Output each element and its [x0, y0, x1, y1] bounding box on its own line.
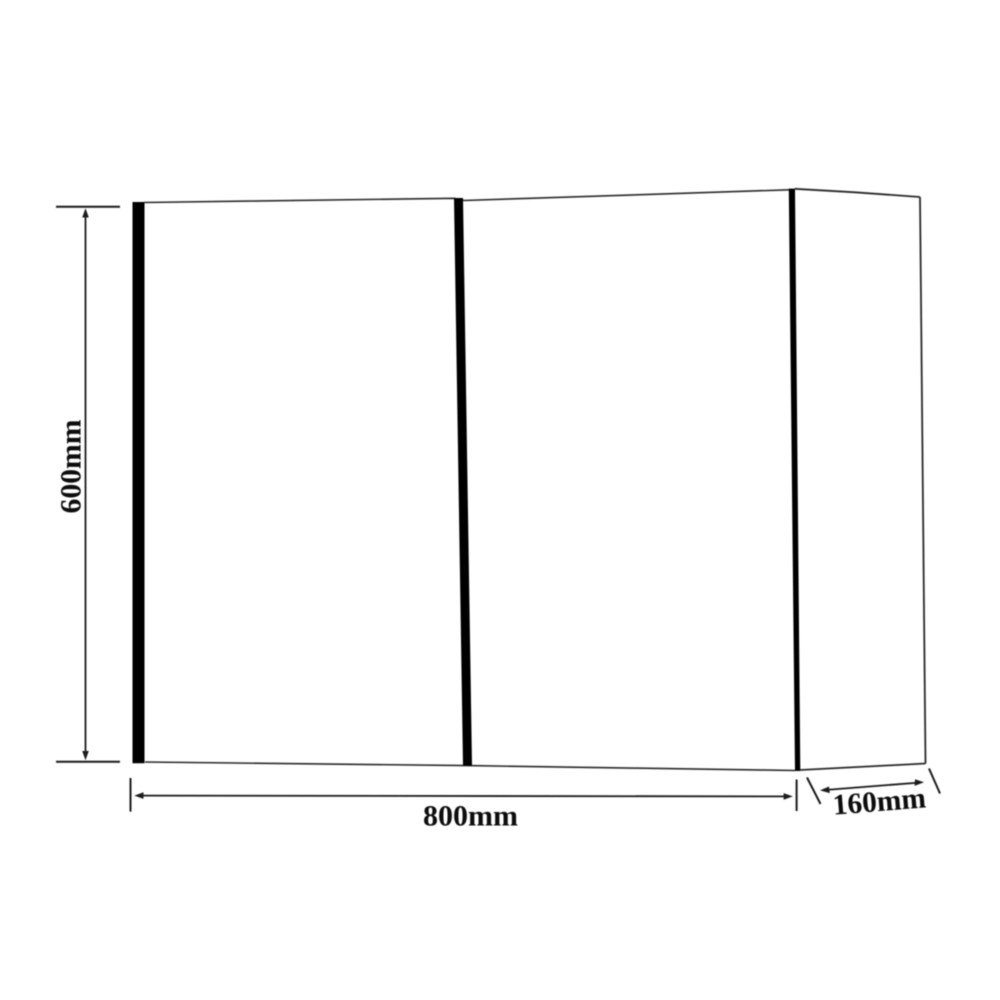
svg-text:160mm: 160mm — [831, 782, 927, 821]
svg-text:600mm: 600mm — [56, 419, 88, 513]
svg-text:800mm: 800mm — [423, 800, 518, 833]
